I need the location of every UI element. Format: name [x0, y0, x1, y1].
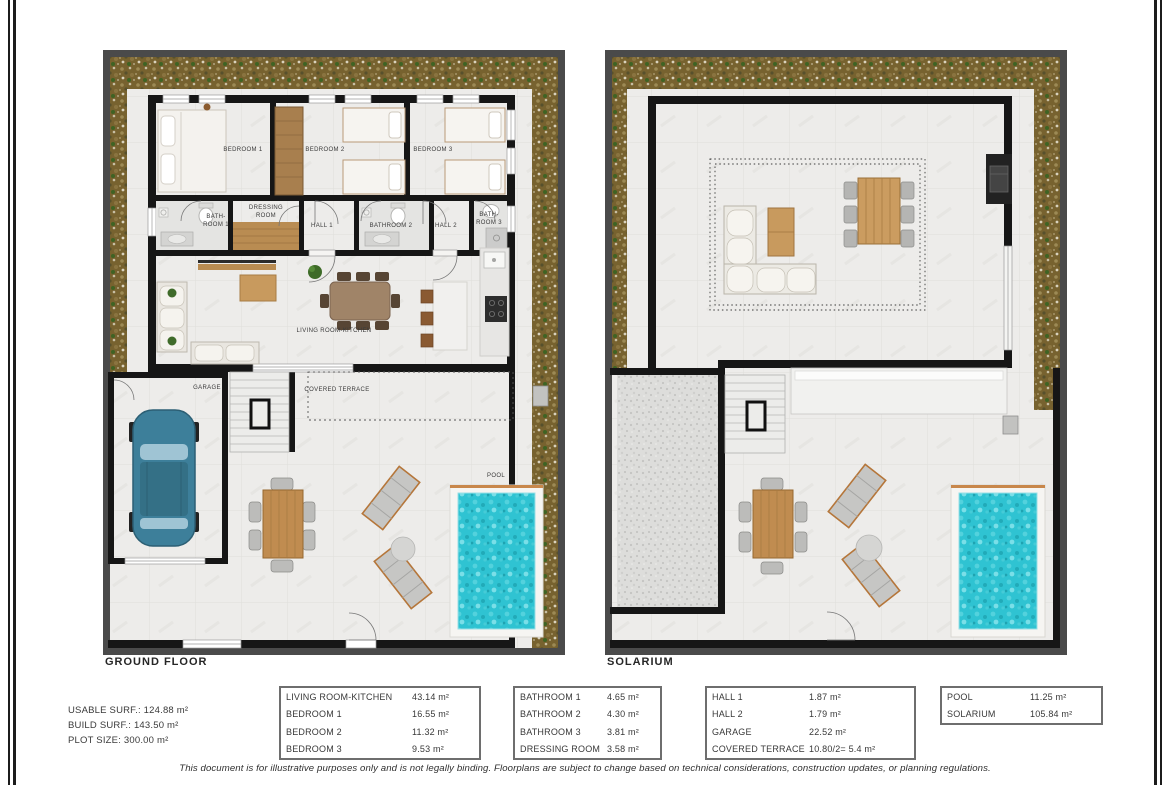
room-area: 4.65 m²: [607, 692, 655, 702]
build-surface: BUILD SURF.: 143.50 m²: [68, 718, 188, 733]
room-area: 3.81 m²: [607, 727, 655, 737]
table-row: SOLARIUM105.84 m²: [942, 706, 1101, 724]
legal-disclaimer: This document is for illustrative purpos…: [0, 763, 1170, 774]
page-frame-left-inner: [13, 0, 16, 785]
pool: [450, 485, 543, 637]
page-frame-left-outer: [8, 0, 10, 785]
room-area: 9.53 m²: [412, 744, 474, 754]
room-name: COVERED TERRACE: [712, 744, 809, 754]
table-row: HALL 11.87 m²: [707, 688, 914, 706]
room-area: 16.55 m²: [412, 709, 474, 719]
room-area: 105.84 m²: [1030, 709, 1096, 719]
label-bedroom3: BEDROOM 3: [413, 147, 452, 155]
surface-stats: USABLE SURF.: 124.88 m² BUILD SURF.: 143…: [68, 703, 188, 748]
walkway-strip: [791, 368, 1007, 414]
label-garage: GARAGE: [193, 385, 221, 393]
terrace-dining: [844, 178, 914, 247]
room-area: 3.58 m²: [607, 744, 655, 754]
table-row: HALL 21.79 m²: [707, 706, 914, 724]
floorplan-sheet: { "plans": { "ground": { "title": "GROUN…: [0, 0, 1170, 785]
plot-size: PLOT SIZE: 300.00 m²: [68, 733, 188, 748]
table-row: BATHROOM 14.65 m²: [515, 688, 660, 706]
label-dressing: DRESSING ROOM: [249, 205, 283, 221]
room-name: BEDROOM 2: [286, 727, 412, 737]
table-row: BATHROOM 33.81 m²: [515, 723, 660, 741]
label-hall2: HALL 2: [435, 223, 457, 231]
label-pool: POOL: [487, 473, 505, 481]
room-area: 10.80/2= 5.4 m²: [809, 744, 909, 754]
label-bathroom3: BATH- ROOM 3: [476, 212, 502, 228]
area-table-halls-garage: HALL 11.87 m² HALL 21.79 m² GARAGE22.52 …: [705, 686, 916, 760]
ac-unit: [1003, 416, 1018, 434]
page-frame-right-inner: [1154, 0, 1157, 785]
room-area: 1.87 m²: [809, 692, 909, 702]
solarium-plan: [605, 50, 1067, 655]
room-area: 11.25 m²: [1030, 692, 1096, 702]
label-bathroom2: BATHROOM 2: [370, 223, 413, 231]
room-name: BATHROOM 3: [520, 727, 607, 737]
room-name: LIVING ROOM-KITCHEN: [286, 692, 412, 702]
table-row: BEDROOM 116.55 m²: [281, 706, 479, 724]
label-terrace: COVERED TERRACE: [304, 387, 369, 395]
room-area: 22.52 m²: [809, 727, 909, 737]
usable-surface: USABLE SURF.: 124.88 m²: [68, 703, 188, 718]
car: [129, 410, 199, 546]
room-name: BATHROOM 2: [520, 709, 607, 719]
table-row: BATHROOM 24.30 m²: [515, 706, 660, 724]
stairs: [230, 372, 289, 452]
label-bedroom1: BEDROOM 1: [223, 147, 262, 155]
ground-floor-title: GROUND FLOOR: [105, 656, 207, 668]
table-row: BEDROOM 211.32 m²: [281, 723, 479, 741]
label-bedroom2: BEDROOM 2: [305, 147, 344, 155]
room-name: HALL 1: [712, 692, 809, 702]
label-living: LIVING ROOM-KITCHEN: [297, 328, 372, 336]
pool: [951, 485, 1045, 637]
room-area: 4.30 m²: [607, 709, 655, 719]
solarium-title: SOLARIUM: [607, 656, 674, 668]
room-name: DRESSING ROOM: [520, 744, 607, 754]
area-table-main-rooms: LIVING ROOM-KITCHEN43.14 m² BEDROOM 116.…: [279, 686, 481, 760]
area-table-pool-solarium: POOL11.25 m² SOLARIUM105.84 m²: [940, 686, 1103, 725]
bbq: [986, 154, 1012, 204]
label-hall1: HALL 1: [311, 223, 333, 231]
room-name: SOLARIUM: [947, 709, 1030, 719]
room-name: BEDROOM 3: [286, 744, 412, 754]
stairs: [725, 375, 785, 453]
table-row: DRESSING ROOM3.58 m²: [515, 741, 660, 759]
bed-double-bedroom1: [158, 104, 226, 193]
room-name: HALL 2: [712, 709, 809, 719]
table-row: COVERED TERRACE10.80/2= 5.4 m²: [707, 741, 914, 759]
room-name: BATHROOM 1: [520, 692, 607, 702]
label-bathroom1: BATH- ROOM 1: [203, 214, 229, 230]
room-area: 1.79 m²: [809, 709, 909, 719]
glass-wall: [1004, 246, 1012, 350]
room-name: GARAGE: [712, 727, 809, 737]
page-frame-right-outer: [1160, 0, 1162, 785]
room-name: POOL: [947, 692, 1030, 702]
table-row: POOL11.25 m²: [942, 688, 1101, 706]
room-area: 11.32 m²: [412, 727, 474, 737]
room-area: 43.14 m²: [412, 692, 474, 702]
ac-unit: [533, 386, 548, 406]
table-row: GARAGE22.52 m²: [707, 723, 914, 741]
solarium-drawing: [605, 50, 1067, 655]
room-name: BEDROOM 1: [286, 709, 412, 719]
gravel-roof: [617, 375, 718, 607]
ground-floor-drawing: [103, 50, 565, 655]
table-row: LIVING ROOM-KITCHEN43.14 m²: [281, 688, 479, 706]
ground-floor-plan: BEDROOM 1 BEDROOM 2 BEDROOM 3 BATH- ROOM…: [103, 50, 565, 655]
wardrobe: [275, 107, 303, 195]
coffee-table: [768, 208, 794, 256]
table-row: BEDROOM 39.53 m²: [281, 741, 479, 759]
area-table-bathrooms: BATHROOM 14.65 m² BATHROOM 24.30 m² BATH…: [513, 686, 662, 760]
